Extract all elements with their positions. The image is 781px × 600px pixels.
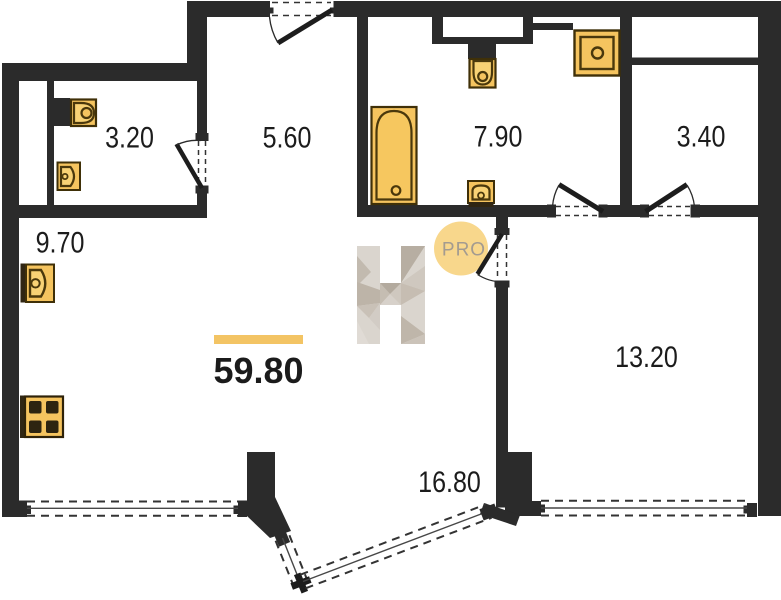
svg-text:16.80: 16.80 (418, 465, 481, 498)
svg-text:5.60: 5.60 (263, 121, 312, 154)
svg-text:9.70: 9.70 (36, 226, 85, 259)
svg-text:13.20: 13.20 (615, 340, 678, 373)
svg-text:3.20: 3.20 (105, 121, 154, 154)
svg-text:7.90: 7.90 (474, 120, 523, 153)
svg-text:PRO: PRO (442, 240, 486, 261)
svg-text:3.40: 3.40 (677, 120, 726, 153)
svg-text:59.80: 59.80 (213, 350, 303, 391)
